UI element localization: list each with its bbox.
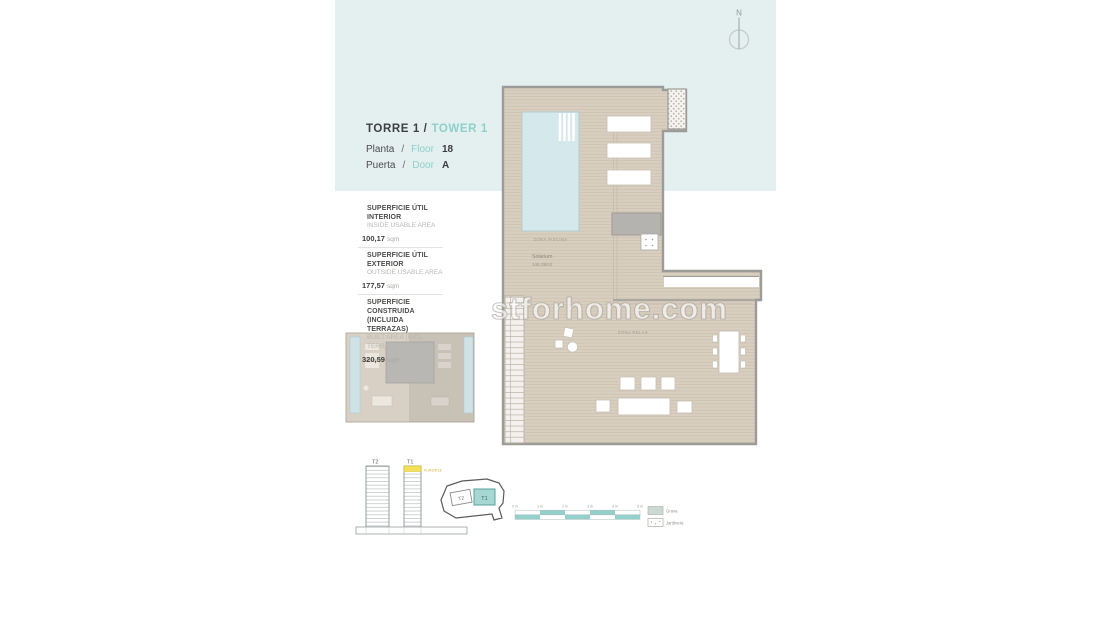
area-entry-built: SUPERFICIE CONSTRUIDA (INCLUIDA TERRAZAS… [358,294,443,368]
solarium-label: Solarium [532,254,552,260]
floor-line: Planta/Floor18 [366,144,488,155]
floor-tag-label: PLANTA 18 [424,469,442,473]
legend-label-grava: Grava [666,509,678,514]
pool [522,112,579,231]
area-value: 177,57 [362,281,385,290]
armchair [641,377,656,390]
surface-areas: SUPERFICIE ÚTIL INTERIOR INSIDE USABLE A… [358,201,443,368]
scale-segment [515,515,540,520]
area-entry-exterior: SUPERFICIE ÚTIL EXTERIOR OUTSIDE USABLE … [358,247,443,294]
site-plan: T2 T1 [441,479,504,520]
zona-piscina-label: ZONA PISCINA [533,237,567,242]
area-subtitle: OUTSIDE USABLE AREA [358,269,443,278]
area-title: SUPERFICIE ÚTIL INTERIOR [358,204,443,222]
scale-tick-label: 2 m [562,505,568,509]
north-compass: N [730,9,749,50]
chair [741,361,746,368]
sofa [618,398,670,415]
site-tower-t1: T1 [474,489,495,505]
side-table [555,340,563,348]
armchair [661,377,675,390]
scale-bar: 0 m 1 m 2 m 3 m 4 m 5 m [512,505,643,520]
area-title: SUPERFICIE ÚTIL EXTERIOR [358,251,443,269]
site-t1-label: T1 [481,496,487,502]
area-title-2: (INCLUIDA TERRAZAS) [358,316,443,334]
armchair [620,377,635,390]
scale-tick-label: 0 m [512,505,518,509]
dining-table [719,331,739,373]
floor-value: 18 [442,144,453,155]
site-tower-t2: T2 [450,489,472,505]
floor-label: Floor [411,144,434,155]
area-value: 320,59 [362,355,385,364]
tower-title: TORRE 1 /TOWER 1 [366,123,488,135]
chair [713,361,718,368]
scale-tick-label: 3 m [587,505,593,509]
dining-set [713,331,746,373]
door-value: A [442,160,449,171]
legend-swatch-grava [648,507,663,515]
key-pool-right [464,337,473,413]
tower-label: TOWER 1 [431,123,487,135]
scale-segment [540,510,565,515]
area-entry-interior: SUPERFICIE ÚTIL INTERIOR INSIDE USABLE A… [358,201,443,247]
slash: / [402,160,405,171]
terrace-edge [664,277,759,287]
sun-lounger [607,170,651,185]
unit-header: TORRE 1 /TOWER 1 Planta/Floor18 Puerta/D… [366,123,488,171]
round-table [567,342,577,352]
scale-tick-label: 1 m [537,505,543,509]
planta-label: Planta [366,144,394,155]
sun-lounger [607,143,651,158]
key-table [431,397,449,406]
legend-swatch-jardinera [648,519,663,527]
main-floor-plan: ZONA PISCINA Solarium 146,28m2 [503,87,761,444]
side-table [596,400,610,412]
zona-relax-label: ZONA RELAX [618,330,648,335]
tower-t2 [366,466,389,527]
scale-segment [590,510,615,515]
slash: / [401,144,404,155]
tower-t1 [404,466,421,527]
chair [741,348,746,355]
tower-t1-label: T1 [407,460,413,466]
scale-segment [565,515,590,520]
scale-tick-label: 5 m [637,505,643,509]
highlighted-floor [404,466,421,472]
chair [741,335,746,342]
legend: Grava Jardinera [648,507,684,527]
door-label: Door [412,160,434,171]
side-table [677,401,692,413]
area-subtitle: BUILT AREA (INCL. TERRACE) [358,334,443,352]
area-unit: sqm [387,283,399,290]
door-line: Puerta/DoorA [366,160,488,171]
key-table [372,396,392,406]
chair [713,335,718,342]
chair [713,348,718,355]
scale-tick-label: 4 m [612,505,618,509]
tower-t2-label: T2 [372,460,378,466]
torre-label: TORRE 1 / [366,123,427,135]
brochure-page: TORRE 1 /TOWER 1 Planta/Floor18 Puerta/D… [0,0,1110,626]
watermark: stforhome.com [491,291,728,327]
stair-core [612,213,661,235]
jacuzzi [641,234,658,250]
area-value: 100,17 [362,234,385,243]
area-unit: sqm [387,357,399,364]
key-round-table [364,386,369,391]
area-subtitle: INSIDE USABLE AREA [358,222,443,231]
podium [356,527,467,534]
puerta-label: Puerta [366,160,395,171]
sun-lounger [607,116,651,132]
planter-hatch [668,89,686,129]
solarium-area-label: 146,28m2 [532,262,553,267]
north-label: N [736,9,742,18]
side-table [563,327,574,338]
legend-label-jardinera: Jardinera [666,521,684,526]
area-title: SUPERFICIE CONSTRUIDA [358,298,443,316]
scale-segment [615,515,640,520]
area-unit: sqm [387,236,399,243]
scale-row [515,510,640,515]
